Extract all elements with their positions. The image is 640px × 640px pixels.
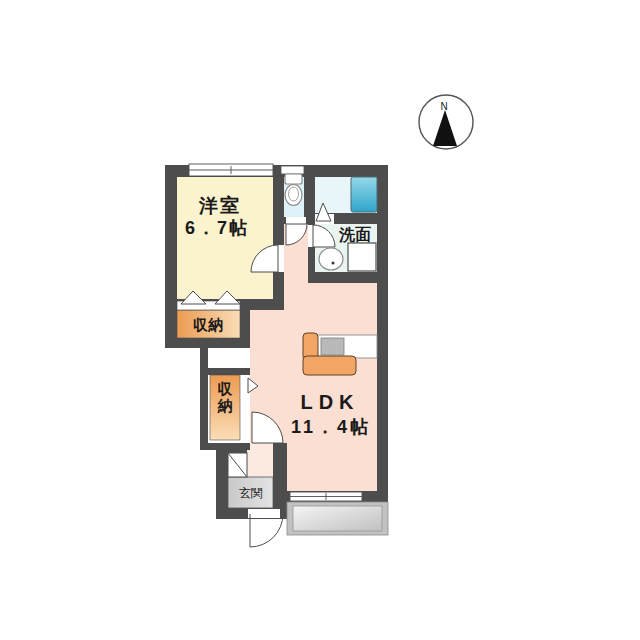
- storage-lower-label: 収納: [217, 380, 233, 414]
- washroom-label: 洗面: [338, 226, 371, 243]
- western-room-label: 洋室: [198, 195, 241, 216]
- toilet-icon: [285, 174, 302, 206]
- shoe-cabinet: [228, 453, 247, 477]
- ldk-label: LDK: [300, 391, 359, 413]
- compass: N: [419, 95, 473, 149]
- balcony: [287, 502, 388, 535]
- compass-north-label: N: [440, 101, 447, 112]
- entrance-label: 玄関: [239, 486, 263, 500]
- window-western-room: [189, 164, 273, 176]
- window-ldk-balcony: [290, 492, 362, 501]
- front-door-opening: [248, 509, 280, 518]
- sink-icon: [319, 248, 343, 270]
- stove: [321, 338, 344, 355]
- ldk-size: 11．4帖: [291, 417, 371, 437]
- storage-upper-label: 収納: [193, 316, 223, 333]
- entrance-hall-floor: [247, 450, 273, 477]
- dead-space: [208, 348, 250, 368]
- window-toilet: [281, 166, 304, 174]
- washing-machine-pan: [348, 243, 376, 271]
- floor-plan-canvas: 洋室 6．7帖 LDK 11．4帖 洗面 収納 収納 玄関 N: [0, 0, 640, 640]
- toilet-door-opening: [286, 217, 306, 224]
- western-room-size: 6．7帖: [185, 218, 249, 238]
- bathtub: [351, 177, 377, 212]
- floor-plan-page: 洋室 6．7帖 LDK 11．4帖 洗面 収納 収納 玄関 N: [0, 0, 640, 640]
